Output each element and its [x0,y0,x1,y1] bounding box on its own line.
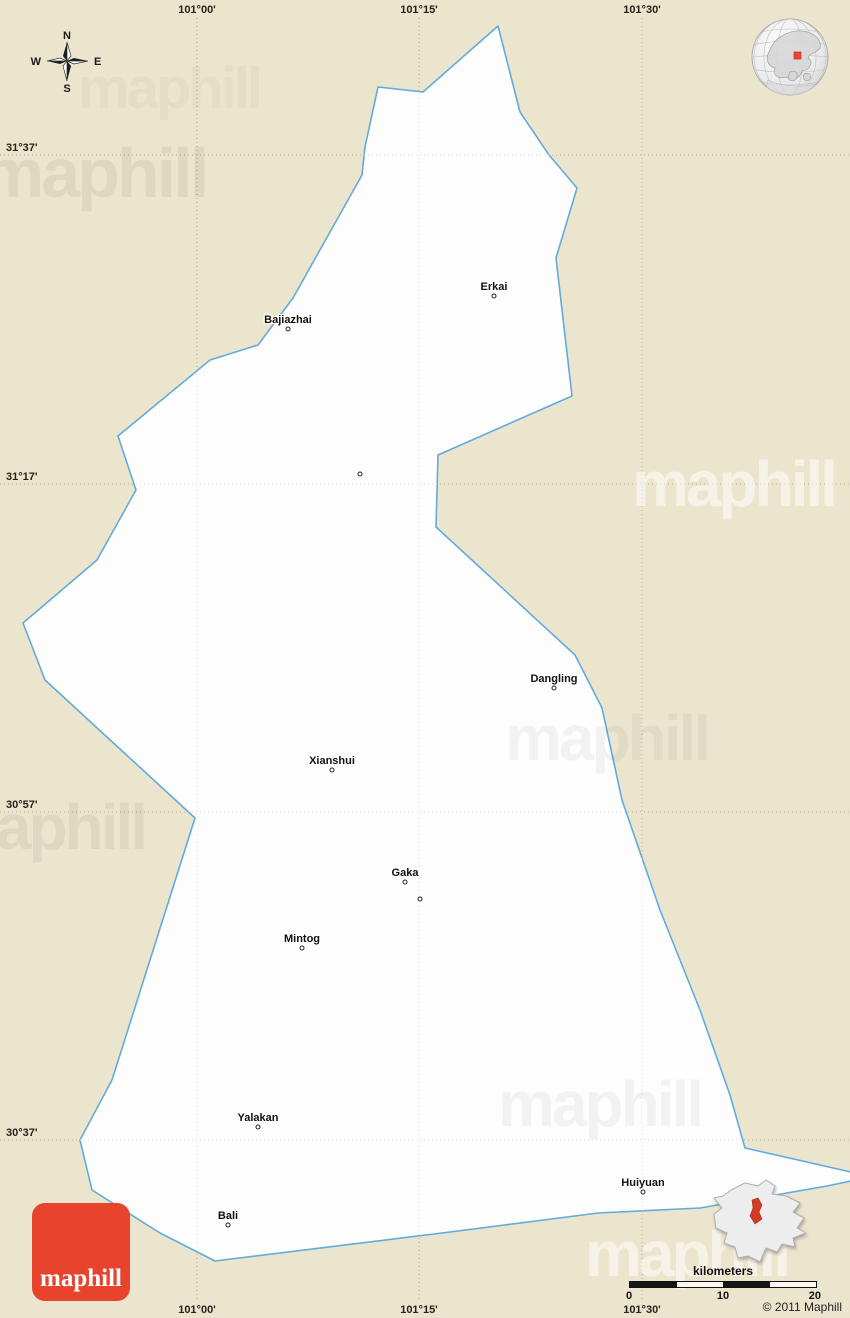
scale-segment [677,1282,724,1287]
place-marker [552,686,557,691]
scale-segment [630,1282,677,1287]
globe-location-marker [794,52,801,59]
parallel-label-left: 30°57' [6,799,38,811]
maphill-logo[interactable]: maphill [32,1203,130,1301]
place-marker [418,897,423,902]
place-marker [330,768,335,773]
county-map [0,0,850,1318]
place-marker [226,1223,231,1228]
scale-segment [770,1282,817,1287]
meridian-label-bottom: 101°15' [400,1304,438,1316]
scale-tick-label: 0 [626,1290,632,1302]
place-label: Dangling [530,673,577,685]
place-label: Yalakan [238,1112,279,1124]
compass-south-label: S [63,83,70,95]
meridian-label-top: 101°15' [400,4,438,16]
parallel-label-left: 31°17' [6,471,38,483]
compass-rose: N S E W [30,26,106,100]
locator-globe [750,16,832,100]
copyright-notice: © 2011 Maphill [763,1300,842,1314]
place-label: Gaka [392,867,419,879]
place-label: Bajiazhai [264,314,312,326]
place-marker [286,327,291,332]
place-marker [641,1190,646,1195]
parallel-label-left: 31°37' [6,142,38,154]
scale-bar: kilometers 01020 [629,1264,817,1305]
place-marker [300,946,305,951]
place-marker [358,472,363,477]
compass-north-label: N [63,30,71,42]
province-shape [714,1180,806,1262]
scale-bar-segments [629,1281,817,1288]
meridian-label-bottom: 101°30' [623,1304,661,1316]
meridian-label-top: 101°30' [623,4,661,16]
place-label: Erkai [481,281,508,293]
place-marker [256,1125,261,1130]
province-inset-map [705,1175,817,1270]
maphill-logo-label: maphill [40,1265,122,1293]
place-label: Huiyuan [621,1177,664,1189]
parallel-label-left: 30°37' [6,1127,38,1139]
compass-east-label: E [94,56,101,68]
scale-segment [723,1282,770,1287]
meridian-label-top: 101°00' [178,4,216,16]
place-marker [492,294,497,299]
compass-west-label: W [31,56,42,68]
scale-tick-label: 10 [717,1290,729,1302]
place-marker [403,880,408,885]
map-canvas: maphill maphill maphill maphill maphill … [0,0,850,1318]
place-label: Bali [218,1210,238,1222]
place-label: Xianshui [309,755,355,767]
scale-bar-title: kilometers [629,1264,817,1278]
place-label: Mintog [284,933,320,945]
meridian-label-bottom: 101°00' [178,1304,216,1316]
